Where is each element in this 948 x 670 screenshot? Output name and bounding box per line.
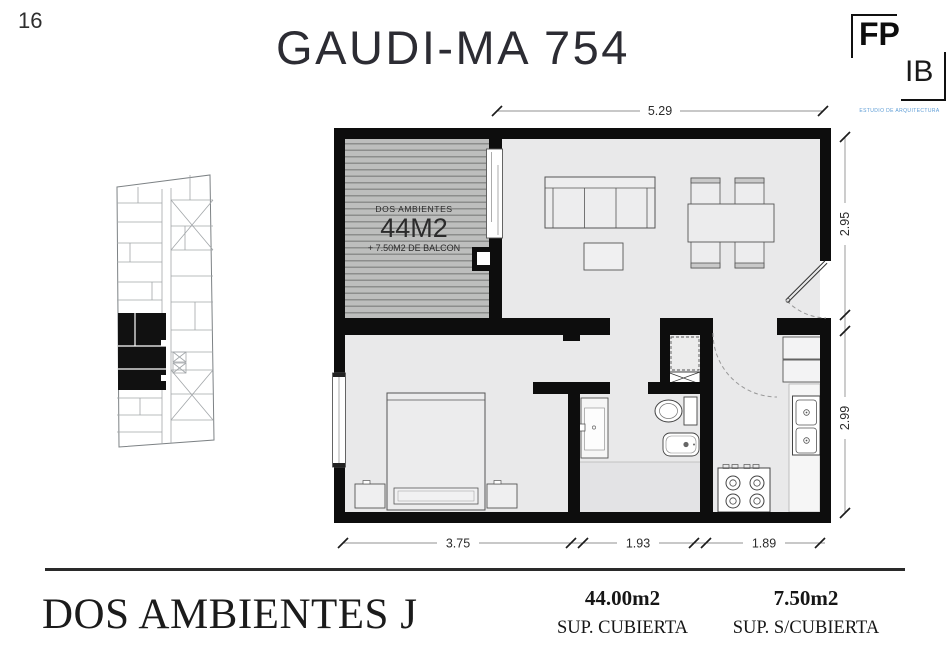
dimension-bottom: 3.75 1.93 1.89 xyxy=(338,536,825,551)
bedroom-window xyxy=(333,373,346,467)
kitchen-sink xyxy=(793,396,821,455)
dimension-right: 2.95 2.99 xyxy=(837,132,853,518)
uncovered-area-label: SUP. S/CUBIERTA xyxy=(722,618,890,639)
uncovered-area-value: 7.50m2 xyxy=(722,586,890,611)
closet xyxy=(667,337,700,384)
building-key-plan xyxy=(98,166,238,456)
main-floor-plan: DOS AMBIENTES 44M2 + 7.50M2 DE BALCON xyxy=(320,90,870,565)
bidet xyxy=(663,433,699,456)
unit-name: DOS AMBIENTES J xyxy=(42,590,417,639)
vanity-sink xyxy=(577,398,608,458)
dimension-top: 5.29 xyxy=(492,104,828,118)
covered-area-value: 44.00m2 xyxy=(545,586,700,611)
balcony-label-line2: 44M2 xyxy=(380,213,448,243)
logo-ib: IB xyxy=(905,55,933,89)
page-title: GAUDI-MA 754 xyxy=(0,20,906,75)
bed xyxy=(387,393,485,510)
covered-area: 44.00m2 SUP. CUBIERTA xyxy=(545,586,700,639)
balcony-slider-door xyxy=(487,149,503,238)
covered-area-label: SUP. CUBIERTA xyxy=(545,618,700,639)
logo-fp: FP xyxy=(859,16,900,53)
dim-right-top-label: 2.95 xyxy=(838,212,852,236)
uncovered-area: 7.50m2 SUP. S/CUBIERTA xyxy=(722,586,890,639)
keyplan-highlighted-unit xyxy=(118,313,166,390)
sofa xyxy=(545,177,655,228)
balcony-label-line3: + 7.50M2 DE BALCON xyxy=(368,243,460,253)
stove xyxy=(718,465,770,513)
dining-table xyxy=(688,204,774,242)
balcony-column-window xyxy=(477,252,490,265)
balcony: DOS AMBIENTES 44M2 + 7.50M2 DE BALCON xyxy=(345,139,489,318)
dim-right-bottom-label: 2.99 xyxy=(838,406,852,430)
dim-bottom-right-label: 1.89 xyxy=(752,537,776,551)
dim-bottom-left-label: 3.75 xyxy=(446,537,470,551)
bathroom-wet-zone xyxy=(580,462,700,512)
dim-bottom-center-label: 1.93 xyxy=(626,537,650,551)
dim-top-label: 5.29 xyxy=(648,104,672,118)
footer-divider xyxy=(45,568,905,571)
coffee-table xyxy=(584,243,623,270)
